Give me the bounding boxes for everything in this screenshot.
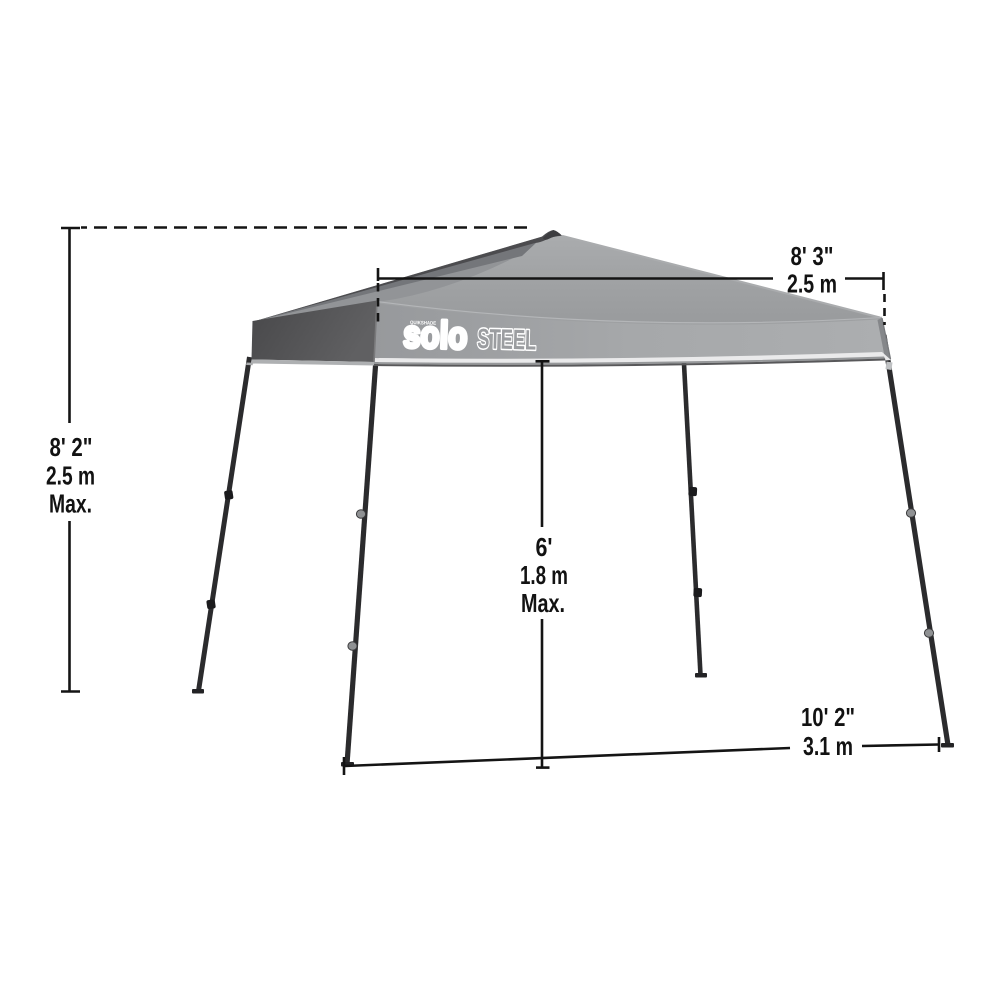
svg-text:1.8 m: 1.8 m (520, 560, 568, 590)
svg-text:2.5 m: 2.5 m (46, 461, 95, 491)
svg-text:3.1 m: 3.1 m (803, 731, 853, 761)
svg-text:6': 6' (536, 532, 553, 562)
svg-text:solo: solo (403, 314, 468, 358)
svg-text:Max.: Max. (49, 489, 92, 519)
svg-text:Max.: Max. (521, 588, 565, 618)
svg-text:STEEL: STEEL (477, 323, 537, 356)
svg-text:8' 3": 8' 3" (791, 241, 834, 271)
svg-text:10' 2": 10' 2" (801, 702, 855, 732)
svg-text:2.5 m: 2.5 m (787, 269, 837, 299)
svg-text:8' 2": 8' 2" (50, 432, 93, 462)
